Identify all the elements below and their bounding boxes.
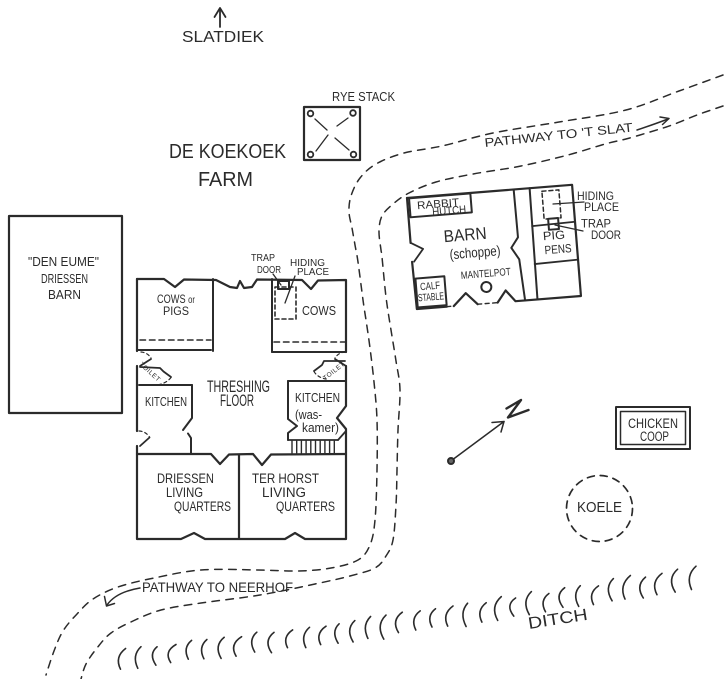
svg-text:HUTCH: HUTCH [432,204,467,219]
svg-text:PATHWAY TO 'T SLAT: PATHWAY TO 'T SLAT [484,120,634,150]
svg-text:RYE STACK: RYE STACK [332,89,395,104]
svg-text:(was-: (was- [295,408,322,422]
svg-text:TRAP: TRAP [251,252,275,264]
svg-text:(schoppe): (schoppe) [449,242,501,262]
svg-text:MANTELPOT: MANTELPOT [460,266,511,282]
svg-text:DITCH: DITCH [527,606,589,633]
svg-text:FARM: FARM [198,169,253,191]
svg-text:KOELE: KOELE [577,499,622,516]
svg-text:SLATDIEK: SLATDIEK [182,29,264,46]
svg-text:COOP: COOP [640,429,669,444]
svg-text:LIVING: LIVING [262,485,306,500]
svg-text:PLACE: PLACE [584,200,619,214]
svg-text:QUARTERS: QUARTERS [174,499,231,514]
svg-text:PATHWAY TO NEERHOF: PATHWAY TO NEERHOF [142,579,293,595]
svg-text:FLOOR: FLOOR [220,392,254,410]
svg-text:PIGS: PIGS [163,304,189,318]
svg-text:DE KOEKOEK: DE KOEKOEK [169,141,287,163]
svg-text:TOILET: TOILET [322,361,347,382]
svg-text:COWS: COWS [302,303,336,318]
svg-text:TER HORST: TER HORST [252,471,319,486]
svg-text:DRIESSEN: DRIESSEN [41,271,88,286]
svg-text:LIVING: LIVING [166,485,203,500]
svg-text:DOOR: DOOR [591,228,621,242]
svg-text:"DEN EUME": "DEN EUME" [28,254,99,269]
svg-text:PENS: PENS [544,241,572,257]
svg-text:KITCHEN: KITCHEN [145,395,187,409]
svg-text:PLACE: PLACE [297,267,329,278]
svg-text:DOOR: DOOR [257,264,281,276]
svg-text:STABLE: STABLE [418,290,445,304]
svg-text:KITCHEN: KITCHEN [295,391,340,405]
svg-text:TOILET: TOILET [138,361,162,383]
svg-text:BARN: BARN [48,287,81,302]
svg-text:DRIESSEN: DRIESSEN [157,471,214,486]
svg-text:QUARTERS: QUARTERS [276,499,335,514]
svg-text:kamer): kamer) [302,421,339,435]
